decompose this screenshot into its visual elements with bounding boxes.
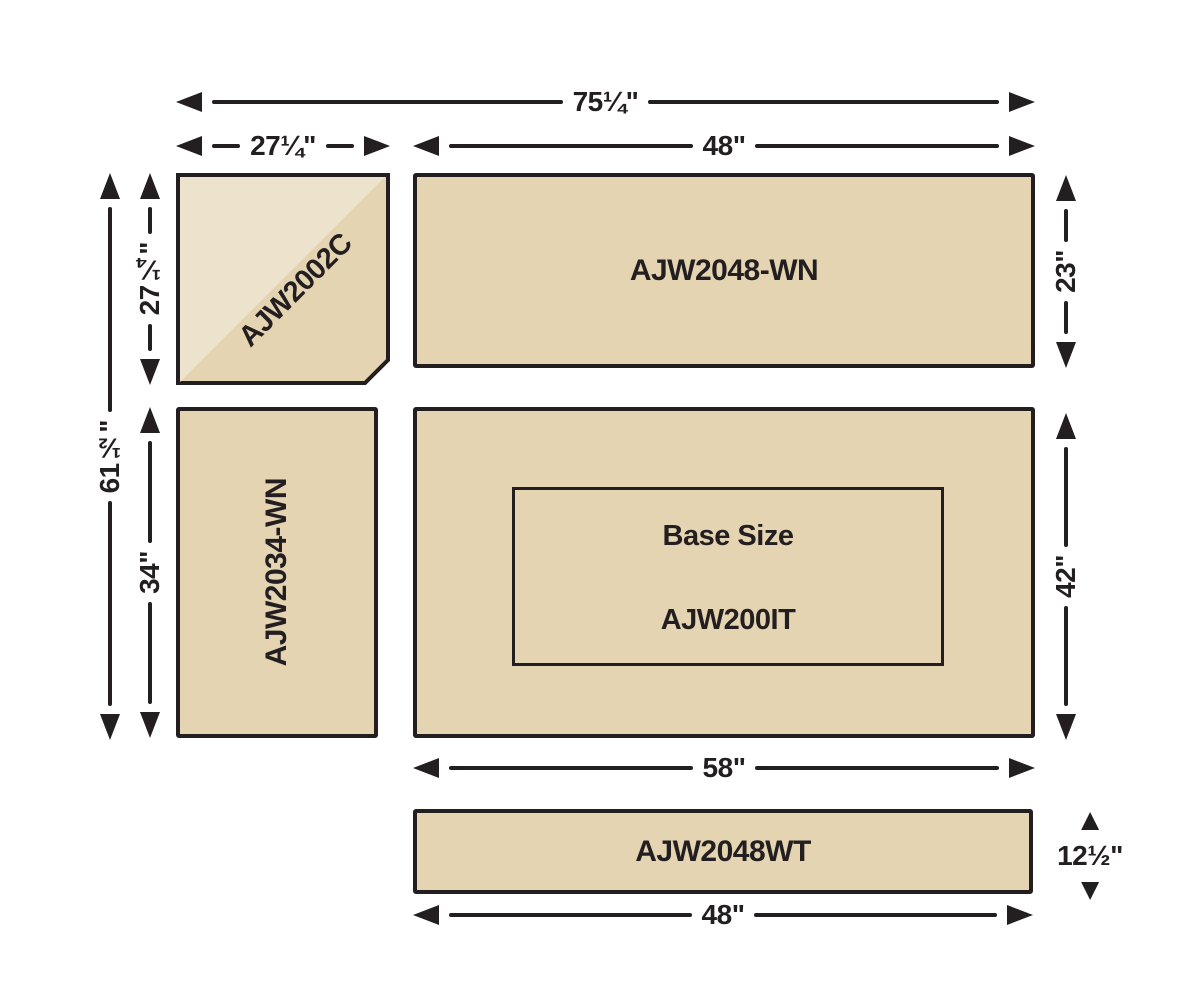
arrowhead-right-icon: [1009, 136, 1035, 156]
arrowhead-left-icon: [176, 136, 202, 156]
dim-bottom-width-label: 48": [702, 901, 745, 929]
arrowhead-left-icon: [176, 92, 202, 112]
dim-bottom-height: 12½": [1057, 812, 1123, 900]
dimension-line: [326, 144, 354, 148]
base-size-title: Base Size: [663, 520, 794, 553]
dimension-line: [212, 100, 563, 104]
dim-overall-height: 61½": [90, 173, 130, 740]
dimension-line: [755, 766, 999, 770]
arrowhead-down-icon: [100, 714, 120, 740]
arrowhead-up-icon: [1081, 812, 1099, 830]
piece-corner: AJW2002C: [176, 173, 390, 385]
arrowhead-down-icon: [140, 712, 160, 738]
dim-top-width-label: 48": [703, 132, 746, 160]
arrowhead-down-icon: [140, 359, 160, 385]
dim-top-width: 48": [413, 128, 1035, 164]
dim-base-width-label: 58": [703, 754, 746, 782]
corner-label-wrap: AJW2002C: [176, 173, 390, 385]
dim-overall-width-label: 75¼": [573, 88, 639, 116]
dimension-line: [1064, 301, 1068, 334]
dim-corner-width: 27¼": [176, 128, 390, 164]
arrowhead-right-icon: [1007, 905, 1033, 925]
dim-corner-height-label: 27¼": [136, 242, 164, 315]
piece-corner-label: AJW2002C: [233, 227, 360, 354]
dim-base-height-label: 42": [1052, 555, 1080, 598]
dim-overall-width: 75¼": [176, 84, 1035, 120]
dimension-line: [754, 913, 997, 917]
dimension-line: [755, 144, 999, 148]
piece-top: AJW2048-WN: [413, 173, 1035, 368]
dimension-line: [449, 766, 693, 770]
base-size-model: AJW200IT: [661, 604, 796, 637]
arrowhead-right-icon: [364, 136, 390, 156]
arrowhead-up-icon: [140, 173, 160, 199]
piece-bottom: AJW2048WT: [413, 809, 1033, 894]
dimension-line: [108, 207, 112, 412]
dim-left-height-label: 34": [136, 551, 164, 594]
dimension-line: [1064, 447, 1068, 547]
arrowhead-up-icon: [140, 407, 160, 433]
piece-left: AJW2034-WN: [176, 407, 378, 738]
arrowhead-up-icon: [1056, 175, 1076, 201]
piece-top-label: AJW2048-WN: [630, 254, 818, 288]
dimension-line: [148, 441, 152, 543]
arrowhead-right-icon: [1009, 92, 1035, 112]
dim-top-height: 23": [1046, 175, 1086, 368]
arrowhead-left-icon: [413, 136, 439, 156]
dimension-line: [1064, 209, 1068, 242]
arrowhead-up-icon: [100, 173, 120, 199]
dim-base-height: 42": [1046, 413, 1086, 740]
dimension-line: [148, 207, 152, 234]
dimension-line: [148, 602, 152, 704]
dimension-line: [449, 913, 692, 917]
dimension-line: [648, 100, 999, 104]
piece-base: Base Size AJW200IT: [413, 407, 1035, 738]
dimension-diagram: 75¼" 27¼" 48" 61½" 27¼" 34": [0, 0, 1200, 1000]
dimension-line: [1064, 606, 1068, 706]
dim-base-width: 58": [413, 750, 1035, 786]
arrowhead-right-icon: [1009, 758, 1035, 778]
dimension-line: [108, 501, 112, 706]
dim-corner-height: 27¼": [130, 173, 170, 385]
arrowhead-down-icon: [1056, 342, 1076, 368]
dim-bottom-width: 48": [413, 897, 1033, 933]
dim-overall-height-label: 61½": [96, 420, 124, 493]
arrowhead-down-icon: [1081, 882, 1099, 900]
arrowhead-up-icon: [1056, 413, 1076, 439]
piece-left-label: AJW2034-WN: [260, 478, 294, 666]
dimension-line: [148, 324, 152, 351]
dim-left-height: 34": [130, 407, 170, 738]
dimension-line: [449, 144, 693, 148]
dimension-line: [212, 144, 240, 148]
dim-top-height-label: 23": [1052, 250, 1080, 293]
dim-corner-width-label: 27¼": [250, 132, 316, 160]
arrowhead-down-icon: [1056, 714, 1076, 740]
dim-bottom-height-label: 12½": [1057, 842, 1123, 870]
base-size-box: Base Size AJW200IT: [512, 487, 944, 666]
arrowhead-left-icon: [413, 905, 439, 925]
piece-bottom-label: AJW2048WT: [635, 835, 811, 869]
arrowhead-left-icon: [413, 758, 439, 778]
